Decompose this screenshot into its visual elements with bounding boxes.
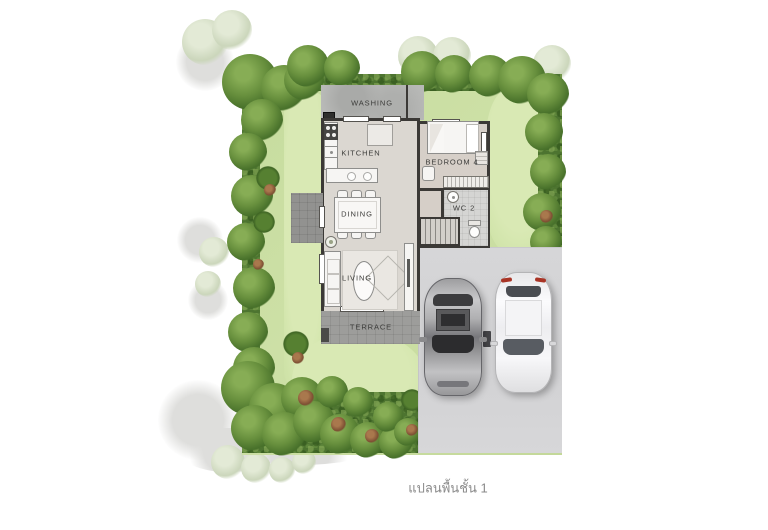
pale-tree	[212, 10, 252, 50]
rear-window	[433, 294, 473, 306]
basin-icon	[447, 191, 459, 203]
front-grille	[437, 381, 469, 387]
tree	[525, 113, 563, 151]
window	[383, 116, 401, 122]
living-label: LIVING	[342, 274, 372, 283]
kitchen-label: KITCHEN	[341, 149, 380, 158]
dining-label: DINING	[341, 210, 373, 219]
wc2-label: WC 2	[453, 204, 475, 213]
windshield	[432, 335, 474, 353]
taillight	[501, 277, 512, 282]
tree	[435, 55, 473, 93]
washing-label: WASHING	[351, 99, 393, 108]
red-bush	[298, 390, 314, 406]
roof	[505, 300, 542, 336]
mirror	[479, 337, 487, 342]
red-bush	[540, 210, 553, 223]
kitchen-island	[326, 168, 378, 183]
tree	[343, 387, 373, 417]
floor-plan-canvas: WASHING KITCHEN BEDROOM 4 WC 2 DINING LI…	[0, 0, 768, 530]
side-door	[319, 206, 325, 228]
stairs	[419, 217, 460, 246]
windshield	[503, 339, 544, 355]
tree	[530, 154, 566, 190]
mirror	[549, 341, 557, 346]
toilet-icon	[468, 220, 481, 239]
sofa-icon	[324, 251, 341, 307]
pale-tree	[211, 445, 245, 479]
mirror	[419, 337, 427, 342]
car-white	[495, 272, 552, 393]
sunroof	[436, 309, 470, 331]
tree	[228, 312, 268, 352]
car-gray	[424, 278, 482, 396]
tree	[324, 50, 360, 86]
window	[343, 116, 369, 122]
tree	[233, 267, 275, 309]
shrub	[253, 211, 275, 233]
pale-tree	[199, 237, 229, 267]
red-bush	[292, 352, 304, 364]
terrace-door-mark	[321, 328, 329, 342]
stove-icon	[324, 124, 338, 140]
taillight	[535, 277, 546, 282]
tree	[527, 73, 569, 115]
plan-caption: แปลนพื้นชั้น 1	[408, 478, 488, 499]
red-bush	[264, 184, 276, 196]
kitchen-sink-icon	[324, 146, 338, 158]
rear-window	[506, 286, 541, 297]
red-bush	[253, 259, 264, 270]
tree	[287, 45, 329, 87]
bed-icon	[427, 121, 479, 154]
red-bush	[365, 429, 379, 443]
pale-tree	[241, 453, 271, 483]
terrace-label: TERRACE	[350, 323, 392, 332]
red-bush	[406, 424, 418, 436]
tv-console	[404, 243, 414, 311]
tree	[229, 133, 267, 171]
bedside-table-icon	[422, 166, 435, 181]
plant-icon	[325, 236, 337, 248]
bedroom4-label: BEDROOM 4	[425, 158, 478, 167]
wardrobe-icon	[443, 176, 489, 188]
fridge-icon	[367, 124, 393, 146]
mirror	[490, 341, 498, 346]
red-bush	[331, 417, 346, 432]
pale-tree	[195, 271, 221, 297]
washing-divider-wall	[406, 85, 408, 120]
